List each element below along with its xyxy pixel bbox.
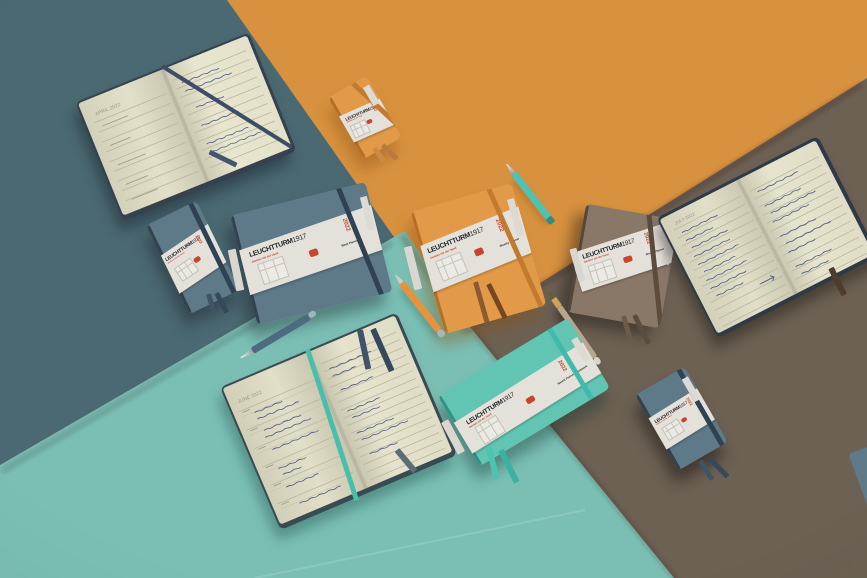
svg-text:JULY 2022: JULY 2022 — [673, 211, 695, 226]
svg-text:APRIL 2022: APRIL 2022 — [94, 101, 121, 117]
svg-text:JUNE 2022: JUNE 2022 — [237, 390, 263, 406]
